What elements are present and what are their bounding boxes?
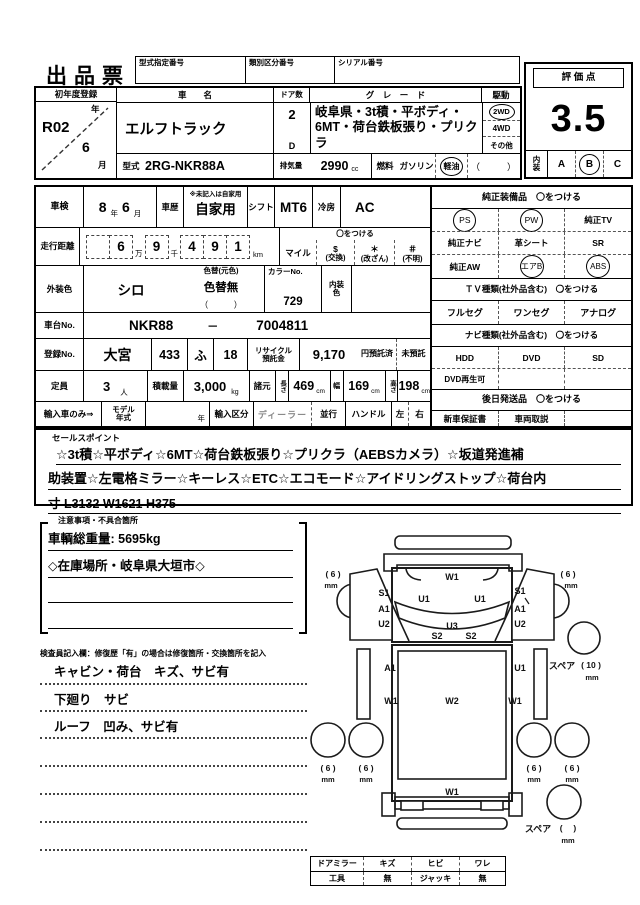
shift-label: シフト	[248, 187, 275, 227]
notes-header: 注意事項・不具合箇所	[58, 515, 307, 526]
first-reg-month: 6	[82, 139, 90, 155]
equip-tv: 純正TV	[564, 209, 631, 231]
height-label: 高さ	[386, 371, 399, 401]
code-left-a1: A1	[378, 604, 390, 614]
sales-line-2: 助装置☆左電格ミラー☆キーレス☆ETC☆エコモード☆アイドリングストップ☆荷台内	[48, 468, 621, 490]
id-number-boxes: 型式指定番号 類別区分番号 シリアル番号	[135, 56, 520, 84]
drive-option-2wd: 2WD	[483, 103, 520, 120]
vehicle-value-row: エルフトラック 2 D 岐阜県・3t積・平ボディ・6MT・荷台鉄板張り・プリクラ…	[117, 103, 520, 153]
rear-left-inner-tire	[349, 723, 383, 757]
equipment-row-2: 純正ナビ 革シート SR	[432, 231, 631, 254]
spec-label: 諸元	[250, 371, 276, 401]
fuel-option-diesel: 軽油	[436, 154, 468, 178]
svg-text:mm: mm	[565, 775, 579, 784]
shaken-label: 車検	[36, 187, 84, 227]
unit-sen: 千	[171, 248, 179, 259]
interior-selected-circle: B	[579, 154, 600, 175]
capacity-value: 3 人	[84, 371, 148, 401]
row-capacity: 定員 3 人 積載量 3,000 kg 諸元 長さ 469 cm 幅 169 c…	[36, 371, 430, 402]
import-division-label: 輸入区分	[210, 402, 254, 426]
equip-pw: PW	[498, 209, 565, 231]
reg-office: 大宮	[84, 339, 152, 370]
fuel-option-gasoline: ガソリン	[398, 154, 436, 178]
mirror-scratch: キズ	[363, 857, 411, 871]
color-no-value: 729	[283, 296, 302, 308]
digit-box-2: 9	[203, 235, 227, 259]
inspector-blank-4	[40, 848, 307, 851]
grade-label: グ レ ー ド	[310, 88, 482, 102]
notes-line-3-blank	[48, 582, 293, 603]
mileage-marks: 〇をつける マイル $ (交換) ＊ (改ざん) ＃ (不明)	[280, 228, 430, 265]
unit-man: 万	[135, 248, 143, 259]
deposited-label: 円預託済	[358, 339, 396, 370]
notes-line-4-blank	[48, 607, 293, 629]
year-unit: 年	[91, 105, 100, 114]
interior-label: 内 装	[526, 151, 548, 177]
model-fuel-row: 型式 2RG-NKR88A 排気量 2990 cc 燃料 ガソリン 軽油 （ ）	[117, 153, 520, 178]
handle-right-option: 右	[409, 402, 430, 426]
tv-type-header: ＴＶ種類(社外品含む) 〇をつける	[432, 278, 631, 301]
score-label: 評 価 点	[562, 73, 596, 83]
digit-box-3: 1	[226, 235, 250, 259]
later-warranty: 新車保証書	[432, 411, 498, 426]
load-label: 積載量	[148, 371, 184, 401]
inspector-blank-1	[40, 764, 307, 767]
dvd-playable-row: DVD再生可	[432, 368, 631, 389]
code-bed-w1-bottom: W1	[445, 787, 459, 797]
grade-value: 岐阜県・3t積・平ボディ・6MT・荷台鉄板張り・プリクラ	[311, 103, 483, 153]
color-change-paren: （ ）	[200, 299, 243, 311]
interior-option-a: A	[548, 151, 575, 177]
displacement-unit: cc	[351, 166, 358, 173]
svg-text:mm: mm	[585, 673, 599, 682]
rear-right-outer-tire	[555, 723, 589, 757]
first-registration-cell: 初年度登録 年 R02 6 月	[36, 88, 117, 178]
model-designation-label: 型式指定番号	[139, 59, 184, 67]
digit-box-sen: 9	[145, 235, 169, 259]
row-inspection: 車検 8 年 6 月 車歴 ※未記入は自家用 自家用 シフト MT6 冷房 AC	[36, 187, 430, 228]
rear-l-outer-depth: ( 6 )	[320, 763, 335, 773]
sales-line-3: 寸 L3132 W1621 H375	[48, 493, 621, 514]
rear-right-inner-tire	[517, 723, 551, 757]
drive-option-4wd: 4WD	[483, 120, 520, 136]
dvd-playable: DVD再生可	[432, 369, 498, 389]
color-change-label: 色替(元色)	[204, 267, 239, 275]
mark-mile: マイル	[280, 240, 316, 265]
rear-r-outer-depth: ( 6 )	[564, 763, 579, 773]
interior-grade-row: 内 装 A B C	[526, 150, 631, 177]
row-registration-no: 登録No. 大宮 433 ふ 18 リサイクル 預託金 9,170 円預託済 未…	[36, 339, 430, 371]
reg-number: 18	[214, 339, 248, 370]
doors-value: 2 D	[274, 103, 311, 153]
drive-option-other: その他	[483, 136, 520, 153]
code-right-a1: A1	[514, 604, 526, 614]
spare2-depth: ( )	[560, 823, 577, 833]
circle-note: 〇をつける	[280, 228, 430, 240]
first-reg-label: 初年度登録	[36, 88, 116, 102]
tv-oneseg: ワンセグ	[498, 301, 565, 324]
svg-text:mm: mm	[527, 775, 541, 784]
import-parallel-option: 並行	[312, 402, 346, 426]
first-reg-value: 年 R02 6 月	[36, 102, 116, 178]
serial-label: シリアル番号	[338, 59, 383, 67]
import-dealer-option: ディーラー	[254, 402, 312, 426]
recycle-fee-label: リサイクル 預託金	[248, 339, 300, 370]
color-no-label: カラーNo.	[265, 268, 303, 276]
code-bed-w1-right: W1	[508, 696, 522, 706]
svg-text:mm: mm	[561, 836, 575, 845]
first-reg-year: R02	[42, 119, 70, 136]
cooling-label: 冷房	[313, 187, 341, 227]
model-designation-no-field: 型式指定番号	[136, 57, 246, 83]
sales-points-box: セールスポイント ☆3t積☆平ボディ☆6MT☆荷台鉄板張り☆プリクラ（AEBSカ…	[34, 428, 633, 506]
accessory-row-2: 工具 無 ジャッキ 無	[311, 872, 505, 886]
equipment-panel: 純正装備品 〇をつける PS PW 純正TV 純正ナビ 革シート SR 純正AW…	[430, 185, 633, 428]
front-left-depth: ( 6 )	[325, 569, 340, 579]
digit-box-empty	[86, 235, 110, 259]
vehicle-name: エルフトラック	[117, 103, 274, 153]
inspector-line-1: キャビン・荷台 キズ、サビ有	[40, 661, 307, 685]
equip-abs: ABS	[564, 255, 631, 278]
spare2-label: スペア	[525, 824, 551, 834]
equip-leather: 革シート	[498, 232, 565, 254]
row-mileage: 走行距離 6 万 9 千 4 9 1 km 〇をつける マイル $ (交換)	[36, 228, 430, 266]
notes-line-1: 車輌総重量: 5695kg	[48, 528, 293, 551]
model-year-value: 年	[146, 402, 210, 426]
notes-box: 注意事項・不具合箇所 車輌総重量: 5695kg ◇在庫場所・岐阜県大垣市◇	[40, 514, 307, 640]
vehicle-header-table: 初年度登録 年 R02 6 月 車 名 ドア数 グ レ ー ド 駆動 エルフトラ…	[34, 86, 522, 180]
not-deposited-label: 未預託	[396, 339, 430, 370]
color-no-block: カラーNo. 729	[265, 266, 322, 312]
code-bed-u1: U1	[514, 663, 526, 673]
svg-text:mm: mm	[324, 581, 338, 590]
code-bed-a1: A1	[384, 663, 396, 673]
unit-km: km	[253, 250, 263, 259]
row-chassis-no: 車台No. NKR88 － 7004811	[36, 313, 430, 339]
fuel-selected-circle: 軽油	[440, 157, 463, 176]
interior-color-label: 内装 色	[322, 266, 352, 312]
code-s2-right: S2	[465, 631, 476, 641]
serial-no-field: シリアル番号	[335, 57, 519, 83]
door-mirror-label: ドアミラー	[311, 857, 363, 871]
digit-box-man: 6	[109, 235, 133, 259]
spare-tire-2	[547, 785, 581, 819]
code-right-u2: U2	[514, 619, 526, 629]
vehicle-header-row: 車 名 ドア数 グ レ ー ド 駆動	[117, 88, 520, 103]
color-change-block: 色替(元色) 色替無 （ ）	[178, 266, 264, 312]
equipment-header: 純正装備品 〇をつける	[432, 187, 631, 209]
history-note: ※未記入は自家用	[190, 188, 242, 198]
tv-type-row: フルセグ ワンセグ アナログ	[432, 301, 631, 324]
length-label: 長さ	[276, 371, 289, 401]
code-right-s1: S1	[514, 586, 525, 596]
rear-r-inner-depth: ( 6 )	[526, 763, 541, 773]
code-left-u2: U2	[378, 619, 390, 629]
width-label: 幅	[331, 371, 344, 401]
month-unit: 月	[98, 161, 107, 170]
equip-navi: 純正ナビ	[432, 232, 498, 254]
navi-sd: SD	[564, 347, 631, 368]
tv-fullseg: フルセグ	[432, 301, 498, 324]
rear-l-inner-depth: ( 6 )	[358, 763, 373, 773]
interior-option-b: B	[575, 151, 604, 177]
equip-ps: PS	[432, 209, 498, 231]
equipment-row-3: 純正AW エアB ABS	[432, 254, 631, 278]
vehicle-detail-table: 車検 8 年 6 月 車歴 ※未記入は自家用 自家用 シフト MT6 冷房 AC…	[34, 185, 432, 428]
class-division-label: 類別区分番号	[249, 59, 294, 67]
chassis-no-value: NKR88 － 7004811	[84, 313, 430, 338]
mirror-crack: ヒビ	[411, 857, 459, 871]
interior-color-value	[352, 266, 430, 312]
inspector-line-3: ルーフ 凹み、サビ有	[40, 716, 307, 739]
history-value: ※未記入は自家用 自家用	[184, 187, 248, 227]
mark-options: マイル $ (交換) ＊ (改ざん) ＃ (不明)	[280, 240, 430, 265]
color-change-value: 色替無	[204, 279, 239, 295]
later-manual: 車両取説	[498, 411, 565, 426]
front-right-depth: ( 6 )	[560, 569, 575, 579]
equip-aw: 純正AW	[432, 255, 498, 278]
name-label: 車 名	[117, 88, 274, 102]
mirror-break: ワレ	[459, 857, 505, 871]
reg-kana: ふ	[188, 339, 214, 370]
mark-unknown: ＃ (不明)	[394, 240, 430, 265]
vehicle-main-cells: 車 名 ドア数 グ レ ー ド 駆動 エルフトラック 2 D 岐阜県・3t積・平…	[117, 88, 520, 178]
jack-label: ジャッキ	[411, 872, 459, 886]
notes-line-2: ◇在庫場所・岐阜県大垣市◇	[48, 555, 293, 578]
navi-dvd: DVD	[498, 347, 565, 368]
length-value: 469 cm	[289, 371, 331, 401]
fuel-label: 燃料	[372, 154, 398, 178]
truck-damage-diagram: W1 U1 U1 U3 S2 S2 S1 A1 U2 S1 A1 U2 A1 U…	[300, 528, 640, 858]
spare1-depth: ( 10 )	[581, 660, 601, 670]
color-name: シロ	[84, 266, 178, 312]
class-division-no-field: 類別区分番号	[246, 57, 335, 83]
auction-sheet: 出品票 型式指定番号 類別区分番号 シリアル番号 評 価 点 3.5 内 装 A…	[0, 0, 640, 905]
reg-no-label: 登録No.	[36, 339, 84, 370]
tools-label: 工具	[311, 872, 363, 886]
inspector-blank-2	[40, 792, 307, 795]
displacement-value: 2990 cc	[308, 154, 372, 178]
svg-text:mm: mm	[321, 775, 335, 784]
handle-label: ハンドル	[346, 402, 392, 426]
width-value: 169 cm	[344, 371, 386, 401]
accessory-row-1: ドアミラー キズ ヒビ ワレ	[311, 857, 505, 872]
drive-options: 2WD 4WD その他	[483, 103, 520, 153]
equip-sr: SR	[564, 232, 631, 254]
svg-text:mm: mm	[359, 775, 373, 784]
inspector-blank-3	[40, 820, 307, 823]
jack-value: 無	[459, 872, 505, 886]
row-import: 輸入車のみ⇒ モデル 年式 年 輸入区分 ディーラー 並行 ハンドル 左 右	[36, 402, 430, 426]
navi-type-header: ナビ種類(社外品含む) 〇をつける	[432, 324, 631, 347]
drive-selected-circle: 2WD	[489, 104, 515, 120]
reg-class-no: 433	[152, 339, 188, 370]
doors-label: ドア数	[274, 88, 310, 102]
equip-airbag: エアB	[498, 255, 565, 278]
doors-sub: D	[289, 141, 296, 151]
mark-exchange: $ (交換)	[316, 240, 354, 265]
history-label: 車歴	[157, 187, 184, 227]
height-value: 198 cm	[398, 371, 430, 401]
fuel-other-paren: （ ）	[468, 154, 520, 178]
mark-tampered: ＊ (改ざん)	[354, 240, 394, 265]
code-left-s1: S1	[378, 588, 389, 598]
recycle-fee-value: 9,170	[300, 339, 358, 370]
accessory-table: ドアミラー キズ ヒビ ワレ 工具 無 ジャッキ 無	[310, 856, 506, 886]
mileage-digits: 6 万 9 千 4 9 1 km	[80, 228, 280, 265]
code-windshield-u3: U3	[446, 621, 458, 631]
evaluation-score-box: 評 価 点 3.5 内 装 A B C	[524, 62, 633, 179]
sales-line-1: ☆3t積☆平ボディ☆6MT☆荷台鉄板張り☆プリクラ（AEBSカメラ）☆坂道発進補	[56, 444, 621, 465]
score-value: 3.5	[526, 90, 631, 148]
later-shipment-row: 新車保証書 車両取説	[432, 411, 631, 426]
tools-value: 無	[363, 872, 411, 886]
rear-left-outer-tire	[311, 723, 345, 757]
spare1-label: スペア	[549, 661, 575, 671]
inspector-line-2: 下廻り サビ	[40, 689, 307, 712]
displacement-label: 排気量	[274, 154, 308, 178]
later-shipment-header: 後日発送品 〇をつける	[432, 389, 631, 411]
capacity-label: 定員	[36, 371, 84, 401]
exterior-color-value: シロ 色替(元色) 色替無 （ ）	[84, 266, 265, 312]
exterior-color-label: 外装色	[36, 266, 84, 312]
handle-left-option: 左	[392, 402, 409, 426]
chassis-no-label: 車台No.	[36, 313, 84, 338]
model-code-value: 2RG-NKR88A	[145, 154, 274, 178]
svg-text:mm: mm	[564, 581, 578, 590]
code-cab-u1-left: U1	[418, 594, 430, 604]
code-cab-u1-right: U1	[474, 594, 486, 604]
digit-box-1: 4	[180, 235, 204, 259]
spare-tire-1	[568, 622, 600, 654]
inspector-section: 検査員記入欄：修復歴「有」の場合は修復箇所・交換箇所を記入 キャビン・荷台 キズ…	[40, 648, 307, 848]
model-code-label: 型式	[117, 154, 145, 178]
interior-option-c: C	[604, 151, 631, 177]
row-exterior-color: 外装色 シロ 色替(元色) 色替無 （ ） カラーNo. 729 内装 色	[36, 266, 430, 313]
code-cab-w1: W1	[445, 572, 459, 582]
cooling-value: AC	[341, 187, 430, 227]
load-value: 3,000 kg	[184, 371, 250, 401]
tv-analog: アナログ	[564, 301, 631, 324]
equipment-row-1: PS PW 純正TV	[432, 209, 631, 231]
model-year-label: モデル 年式	[102, 402, 146, 426]
sales-points-label: セールスポイント	[52, 432, 631, 444]
navi-hdd: HDD	[432, 347, 498, 368]
inspector-header: 検査員記入欄：修復歴「有」の場合は修復箇所・交換箇所を記入	[40, 648, 307, 659]
shift-value: MT6	[275, 187, 313, 227]
shaken-value: 8 年 6 月	[84, 187, 157, 227]
drive-label: 駆動	[482, 88, 520, 102]
import-only-label: 輸入車のみ⇒	[36, 402, 102, 426]
code-bed-w1-left: W1	[384, 696, 398, 706]
code-s2-left: S2	[431, 631, 442, 641]
bracket-left	[40, 522, 48, 634]
score-header: 評 価 点	[533, 68, 624, 88]
mileage-label: 走行距離	[36, 228, 80, 265]
navi-type-row: HDD DVD SD	[432, 347, 631, 368]
code-bed-w2: W2	[445, 696, 459, 706]
